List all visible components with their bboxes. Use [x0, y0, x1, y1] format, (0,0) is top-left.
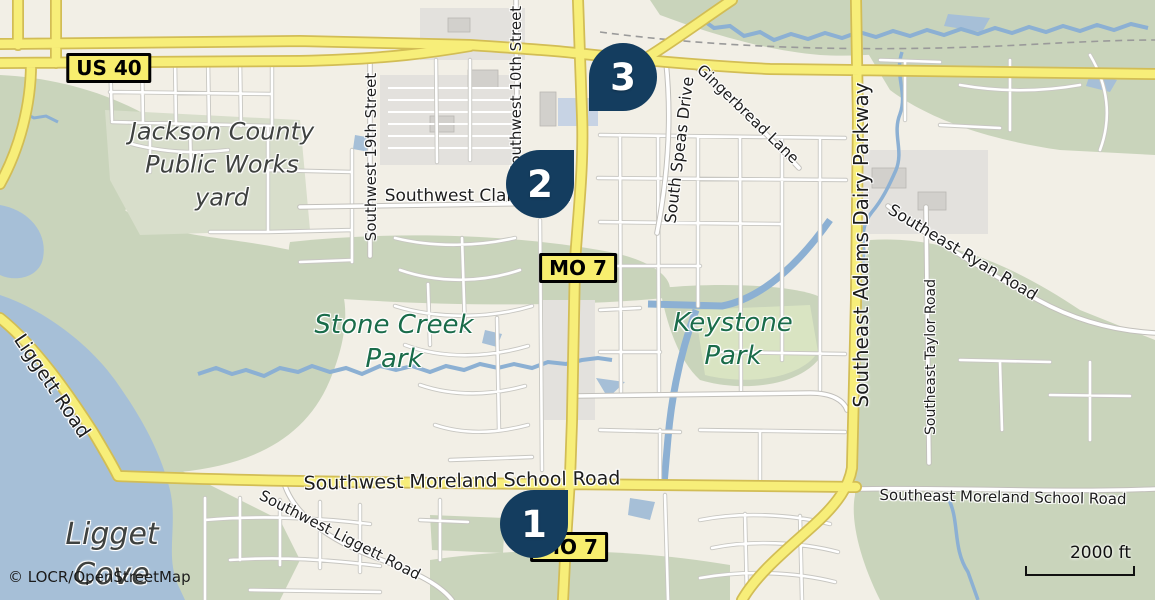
- marker-number: 3: [610, 56, 636, 99]
- marker-number: 1: [521, 503, 547, 546]
- map-marker-3[interactable]: 3: [589, 43, 657, 111]
- map-marker-1[interactable]: 1: [500, 490, 568, 558]
- map-attribution: © LOCR/OpenStreetMap: [8, 568, 191, 586]
- scale-bar: [1025, 566, 1135, 576]
- map-canvas[interactable]: Southwest 10th StreetSouthwest 19th Stre…: [0, 0, 1155, 600]
- marker-number: 2: [527, 163, 553, 206]
- scale-bar-group: 2000 ft: [1025, 543, 1131, 576]
- map-marker-2[interactable]: 2: [506, 150, 574, 218]
- base-map-tiles: [0, 0, 1155, 600]
- scale-bar-label: 2000 ft: [1025, 543, 1131, 563]
